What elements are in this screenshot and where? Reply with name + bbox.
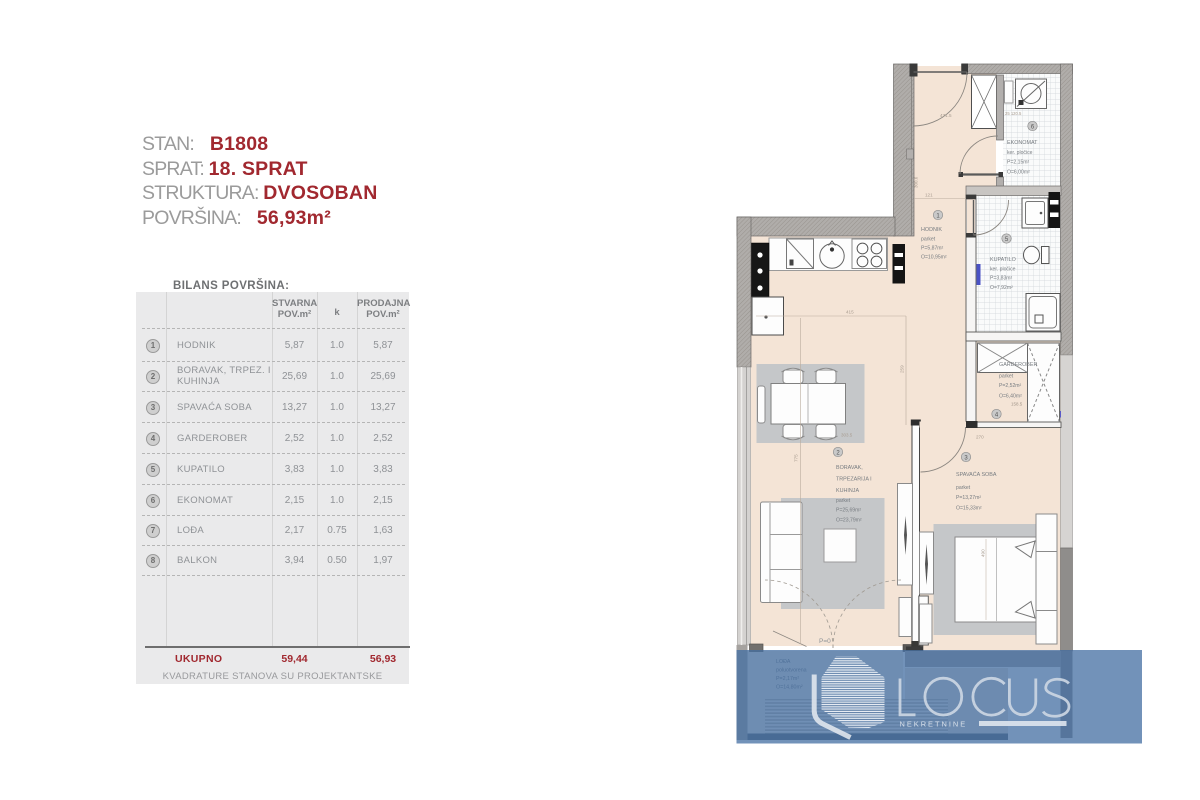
svg-text:490: 490 [981,549,986,557]
svg-text:259: 259 [900,365,905,373]
svg-text:SPAVAĆA SOBA: SPAVAĆA SOBA [956,471,997,478]
svg-text:775: 775 [794,454,799,462]
svg-text:270: 270 [976,435,984,440]
svg-text:O=10,95m²: O=10,95m² [921,255,947,261]
svg-text:O=6,00m²: O=6,00m² [1007,170,1030,176]
svg-text:O=6,40m²: O=6,40m² [999,394,1022,400]
svg-text:121: 121 [925,193,933,198]
svg-text:ker. pločice: ker. pločice [990,267,1016,273]
svg-text:158.5: 158.5 [1011,402,1023,407]
svg-text:KUHINJA: KUHINJA [836,488,859,494]
svg-text:P=2,15m²: P=2,15m² [1007,160,1030,166]
svg-text:471.5: 471.5 [940,113,952,118]
svg-text:300.6: 300.6 [914,176,919,188]
svg-text:parket: parket [999,374,1014,380]
svg-text:O=7,92m²: O=7,92m² [990,285,1013,291]
svg-text:parket: parket [921,237,936,243]
svg-text:KUPATILO: KUPATILO [990,257,1016,263]
svg-text:NEKRETNINE: NEKRETNINE [900,720,968,729]
svg-text:O=23,79m²: O=23,79m² [836,518,862,524]
svg-text:P=2,52m²: P=2,52m² [999,383,1022,389]
svg-text:parket: parket [836,498,851,504]
svg-text:P=25,69m²: P=25,69m² [836,508,861,514]
svg-text:O=15,33m²: O=15,33m² [956,506,982,512]
svg-text:parket: parket [956,485,971,491]
svg-text:ker. pločice: ker. pločice [1007,150,1033,156]
svg-text:EKONOMAT: EKONOMAT [1007,140,1038,146]
svg-text:HODNIK: HODNIK [921,227,942,233]
svg-text:GARDEROBER: GARDEROBER [999,362,1037,368]
svg-text:TRPEZARIJA I: TRPEZARIJA I [836,477,872,483]
svg-text:BORAVAK,: BORAVAK, [836,465,863,471]
svg-text:415: 415 [846,310,854,315]
svg-text:P=13,27m²: P=13,27m² [956,495,981,501]
svg-text:25 120.5: 25 120.5 [1005,111,1022,116]
svg-text:P=5,87m²: P=5,87m² [921,246,944,252]
svg-text:303.5: 303.5 [841,433,853,438]
svg-text:P=0: P=0 [819,638,831,645]
svg-text:P=3,83m²: P=3,83m² [990,276,1013,282]
